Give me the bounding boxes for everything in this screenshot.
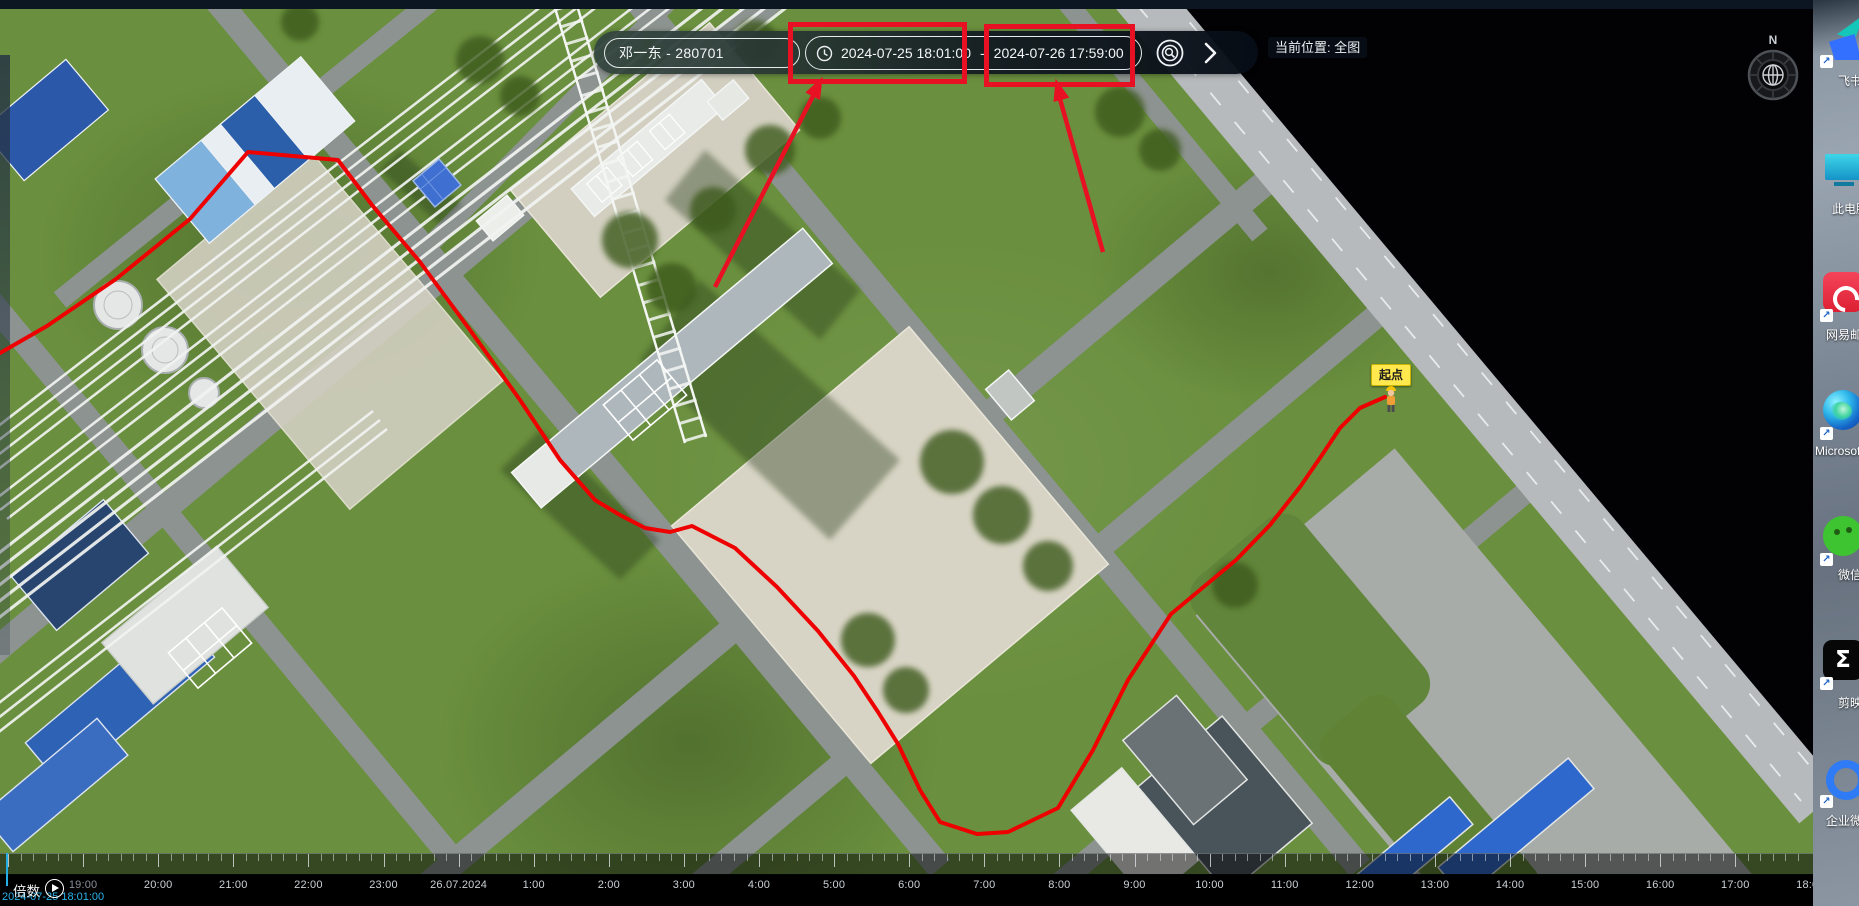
timeline-tick	[1798, 854, 1799, 861]
shortcut-arrow-icon: ↗	[1820, 553, 1833, 566]
timeline-tick	[1072, 854, 1073, 861]
timeline-tick	[496, 854, 497, 861]
timeline-tick	[834, 854, 835, 867]
timeline-tick	[1760, 854, 1761, 861]
timeline-tick	[1435, 854, 1436, 867]
timeline-tick	[1673, 854, 1674, 861]
map-scene	[0, 0, 1813, 906]
timeline-tick	[1347, 854, 1348, 861]
timeline-tick	[1110, 854, 1111, 861]
shortcut-arrow-icon: ↗	[1820, 795, 1833, 808]
timeline-tick	[459, 854, 460, 867]
timeline-tick	[1135, 854, 1136, 867]
timeline-tick	[1598, 854, 1599, 861]
timeline-tick	[772, 854, 773, 861]
timeline-tick	[872, 854, 873, 861]
timeline-label-band: 19:0020:0021:0022:0023:0026.07.20241:002…	[0, 874, 1813, 906]
timeline-tick	[1260, 854, 1261, 861]
timeline-tick	[58, 854, 59, 861]
timeline-tick	[696, 854, 697, 861]
timeline-tick	[1460, 854, 1461, 861]
timeline-tick	[484, 854, 485, 861]
timeline-tick	[571, 854, 572, 861]
compass-north-label: N	[1747, 33, 1799, 47]
timeline-tick	[359, 854, 360, 861]
timeline-tick	[897, 854, 898, 861]
timeline-tick	[396, 854, 397, 861]
timeline-tick	[1660, 854, 1661, 867]
timeline-tick	[1510, 854, 1511, 867]
timeline-tick	[1735, 854, 1736, 867]
timeline-tick	[1698, 854, 1699, 861]
timeline-tick	[559, 854, 560, 861]
timeline-tick	[1222, 854, 1223, 861]
timeline-tick	[384, 854, 385, 867]
timeline-tick	[784, 854, 785, 861]
timeline-tick	[196, 854, 197, 861]
timeline-tick	[1422, 854, 1423, 861]
windows-desktop-strip: ↗ 飞书 此电脑 ↗ 网易邮箱 ↗ Microsoft Edge	[1813, 0, 1859, 906]
timeline-tick	[596, 854, 597, 861]
timeline-tick	[1034, 854, 1035, 861]
timeline-tick	[1009, 854, 1010, 861]
timeline-tick	[321, 854, 322, 861]
desktop-icon-label[interactable]: 剪映	[1815, 694, 1859, 711]
netease-icon	[1823, 272, 1859, 312]
timeline-tick	[283, 854, 284, 861]
edge-icon	[1823, 390, 1859, 430]
timeline-tick	[1560, 854, 1561, 861]
time-range-start[interactable]: 2024-07-25 18:01:00	[841, 45, 971, 61]
shortcut-arrow-icon: ↗	[1820, 677, 1833, 690]
timeline-tick	[308, 854, 309, 867]
timeline-tick	[546, 854, 547, 861]
timeline-tick	[947, 854, 948, 861]
timeline-tick	[434, 854, 435, 861]
timeline-tick	[1773, 854, 1774, 861]
timeline-tick	[1097, 854, 1098, 861]
timeline-tick	[1185, 854, 1186, 861]
desktop-icon-wecom[interactable]: ↗	[1823, 754, 1859, 806]
timeline-tick	[208, 854, 209, 861]
timeline-tick	[346, 854, 347, 861]
person-selector-value: 邓一东 - 280701	[619, 43, 724, 63]
play-button[interactable]	[45, 879, 64, 898]
timeline-tick	[747, 854, 748, 861]
timeline-tick	[1785, 854, 1786, 861]
timeline-tick	[1410, 854, 1411, 861]
desktop-icon-label[interactable]: 此电脑	[1815, 200, 1859, 217]
timeline-tick	[258, 854, 259, 861]
timeline-tick	[1235, 854, 1236, 861]
timeline-tick	[409, 854, 410, 861]
timeline-tick	[46, 854, 47, 861]
desktop-icon-capcut[interactable]: Σ ↗	[1823, 636, 1859, 688]
this-pc-icon	[1825, 154, 1859, 180]
clock-icon	[816, 45, 833, 62]
desktop-icon-this-pc[interactable]	[1823, 146, 1859, 198]
timeline-tick	[1360, 854, 1361, 867]
timeline-tick	[1047, 854, 1048, 861]
timeline-tick	[1648, 854, 1649, 861]
timeline-tick	[1197, 854, 1198, 861]
timeline-tick	[83, 854, 84, 867]
timeline-tick	[797, 854, 798, 861]
timeline-tick	[1397, 854, 1398, 861]
timeline-tick	[121, 854, 122, 861]
timeline-tick	[1635, 854, 1636, 861]
desktop-icon-feishu[interactable]: ↗	[1823, 14, 1859, 66]
timeline-tick	[1084, 854, 1085, 861]
timeline-tick	[1585, 854, 1586, 867]
timeline-tick	[734, 854, 735, 861]
timeline-tick	[909, 854, 910, 867]
timeline-tick	[534, 854, 535, 867]
timeline-tick	[271, 854, 272, 861]
wechat-icon	[1823, 516, 1859, 556]
timeline-tick	[8, 854, 9, 867]
wecom-icon	[1826, 760, 1859, 800]
timeline-tick	[333, 854, 334, 861]
shortcut-arrow-icon: ↗	[1820, 309, 1833, 322]
desktop-icon-label[interactable]: 网易邮箱	[1815, 326, 1859, 343]
desktop-icon-edge[interactable]: ↗	[1823, 386, 1859, 438]
worker-figure-icon	[1382, 383, 1400, 420]
timeline-tick	[171, 854, 172, 861]
timeline-tick	[1147, 854, 1148, 861]
speed-multiplier-label: 倍数	[13, 880, 40, 900]
timeline-tick	[646, 854, 647, 861]
timeline-tick	[371, 854, 372, 861]
time-range-end[interactable]: 2024-07-26 17:59:00	[994, 45, 1124, 61]
timeline-tick	[1172, 854, 1173, 861]
timeline-tick	[108, 854, 109, 861]
timeline-tick	[521, 854, 522, 861]
timeline-tick	[1122, 854, 1123, 861]
timeline-tick	[183, 854, 184, 861]
timeline-hour-label: 18:00	[1765, 879, 1813, 891]
timeline-tick	[859, 854, 860, 861]
timeline-tick	[959, 854, 960, 861]
map-left-shade	[0, 55, 10, 655]
compass-control[interactable]: N	[1747, 33, 1799, 106]
timeline-tick	[1723, 854, 1724, 861]
timeline-tick	[1385, 854, 1386, 861]
timeline-tick	[221, 854, 222, 861]
timeline-tick	[922, 854, 923, 861]
timeline-tick	[934, 854, 935, 861]
timeline-tick	[146, 854, 147, 861]
timeline-tick	[809, 854, 810, 861]
timeline-tick	[421, 854, 422, 861]
desktop-icon-wechat[interactable]: ↗	[1823, 512, 1859, 564]
timeline-tick	[822, 854, 823, 861]
next-button[interactable]	[1200, 41, 1220, 65]
compass-dial	[1747, 49, 1799, 101]
timeline-tick	[509, 854, 510, 861]
desktop-icon-label[interactable]: Microsoft Edge	[1815, 444, 1859, 458]
desktop-icon-netease[interactable]: ↗	[1823, 268, 1859, 320]
window-top-strip	[0, 0, 1813, 9]
timeline-tick	[759, 854, 760, 867]
timeline-tick	[1573, 854, 1574, 861]
time-range-input[interactable]: 2024-07-25 18:01:00 - 2024-07-26 17:59:0…	[805, 36, 1142, 70]
timeline-tick	[634, 854, 635, 861]
desktop-icon-label[interactable]: 飞书	[1815, 72, 1859, 89]
screen: 起点 邓一东 - 280701 2024-07-25 18:	[0, 0, 1859, 906]
timeline-tick	[1272, 854, 1273, 861]
timeline-ruler[interactable]	[0, 853, 1813, 875]
person-selector[interactable]: 邓一东 - 280701	[604, 38, 800, 68]
timeline-tick	[296, 854, 297, 861]
timeline-tick	[1335, 854, 1336, 861]
shortcut-arrow-icon: ↗	[1820, 427, 1833, 440]
timeline-tick	[584, 854, 585, 861]
timeline-tick	[721, 854, 722, 861]
timeline-tick	[1297, 854, 1298, 861]
timeline-tick	[1372, 854, 1373, 861]
timeline-tick	[1022, 854, 1023, 861]
timeline-tick	[609, 854, 610, 867]
timeline-tick	[1623, 854, 1624, 861]
search-button[interactable]	[1156, 39, 1184, 67]
timeline-tick	[1710, 854, 1711, 861]
timeline-tick	[96, 854, 97, 861]
timeline-tick	[1310, 854, 1311, 861]
timeline-tick	[1498, 854, 1499, 861]
timeline-tick	[1748, 854, 1749, 861]
desktop-icon-label[interactable]: 微信	[1815, 566, 1859, 583]
map-application-window: 起点 邓一东 - 280701 2024-07-25 18:	[0, 0, 1813, 906]
timeline-tick	[972, 854, 973, 861]
timeline-tick	[847, 854, 848, 861]
timeline-tick	[133, 854, 134, 861]
timeline-tick	[684, 854, 685, 867]
timeline-tick	[884, 854, 885, 861]
time-range-separator: -	[980, 45, 985, 61]
timeline-tick	[1523, 854, 1524, 861]
timeline-tick	[997, 854, 998, 861]
timeline-tick	[671, 854, 672, 861]
capcut-icon: Σ	[1823, 640, 1859, 680]
timeline-playhead[interactable]	[6, 853, 8, 886]
timeline-tick	[1247, 854, 1248, 861]
timeline-tick	[21, 854, 22, 861]
timeline-tick	[1285, 854, 1286, 867]
timeline-tick	[1322, 854, 1323, 861]
timeline-tick	[1472, 854, 1473, 861]
desktop-icon-label[interactable]: 企业微信	[1815, 812, 1859, 829]
timeline-tick	[446, 854, 447, 861]
timeline-tick	[1160, 854, 1161, 861]
timeline-tick	[33, 854, 34, 861]
timeline-tick	[233, 854, 234, 867]
shortcut-arrow-icon: ↗	[1820, 55, 1833, 68]
timeline-tick	[158, 854, 159, 867]
timeline-tick	[1548, 854, 1549, 861]
timeline-tick	[659, 854, 660, 861]
timeline-tick	[1210, 854, 1211, 867]
timeline-tick	[1447, 854, 1448, 861]
timeline-tick	[1610, 854, 1611, 861]
timeline-tick	[246, 854, 247, 861]
timeline-tick	[1485, 854, 1486, 861]
timeline-tick	[1059, 854, 1060, 867]
current-location-label: 当前位置: 全图	[1268, 37, 1367, 58]
timeline-tick	[621, 854, 622, 861]
timeline-tick	[471, 854, 472, 861]
timeline-tick	[71, 854, 72, 861]
timeline-tick	[1685, 854, 1686, 861]
timeline-tick	[1535, 854, 1536, 861]
track-query-toolbar: 邓一东 - 280701 2024-07-25 18:01:00 - 2024-…	[594, 31, 1258, 74]
timeline-tick	[984, 854, 985, 867]
timeline-tick	[709, 854, 710, 861]
